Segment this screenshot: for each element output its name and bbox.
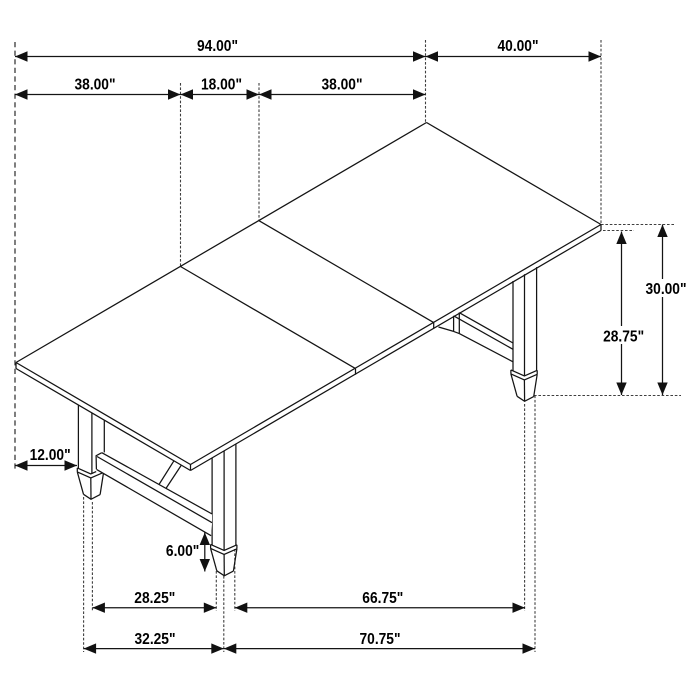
svg-text:94.00": 94.00" bbox=[197, 38, 238, 55]
svg-text:6.00": 6.00" bbox=[166, 543, 199, 560]
svg-text:18.00": 18.00" bbox=[201, 77, 242, 94]
svg-text:28.25": 28.25" bbox=[134, 590, 175, 607]
svg-text:38.00": 38.00" bbox=[322, 77, 363, 94]
svg-text:70.75": 70.75" bbox=[360, 631, 401, 648]
svg-text:38.00": 38.00" bbox=[75, 77, 116, 94]
svg-text:12.00": 12.00" bbox=[30, 447, 71, 464]
svg-text:28.75": 28.75" bbox=[603, 329, 644, 346]
svg-text:40.00": 40.00" bbox=[498, 38, 539, 55]
svg-text:66.75": 66.75" bbox=[362, 590, 403, 607]
svg-text:30.00": 30.00" bbox=[646, 281, 687, 298]
svg-text:32.25": 32.25" bbox=[135, 631, 176, 648]
